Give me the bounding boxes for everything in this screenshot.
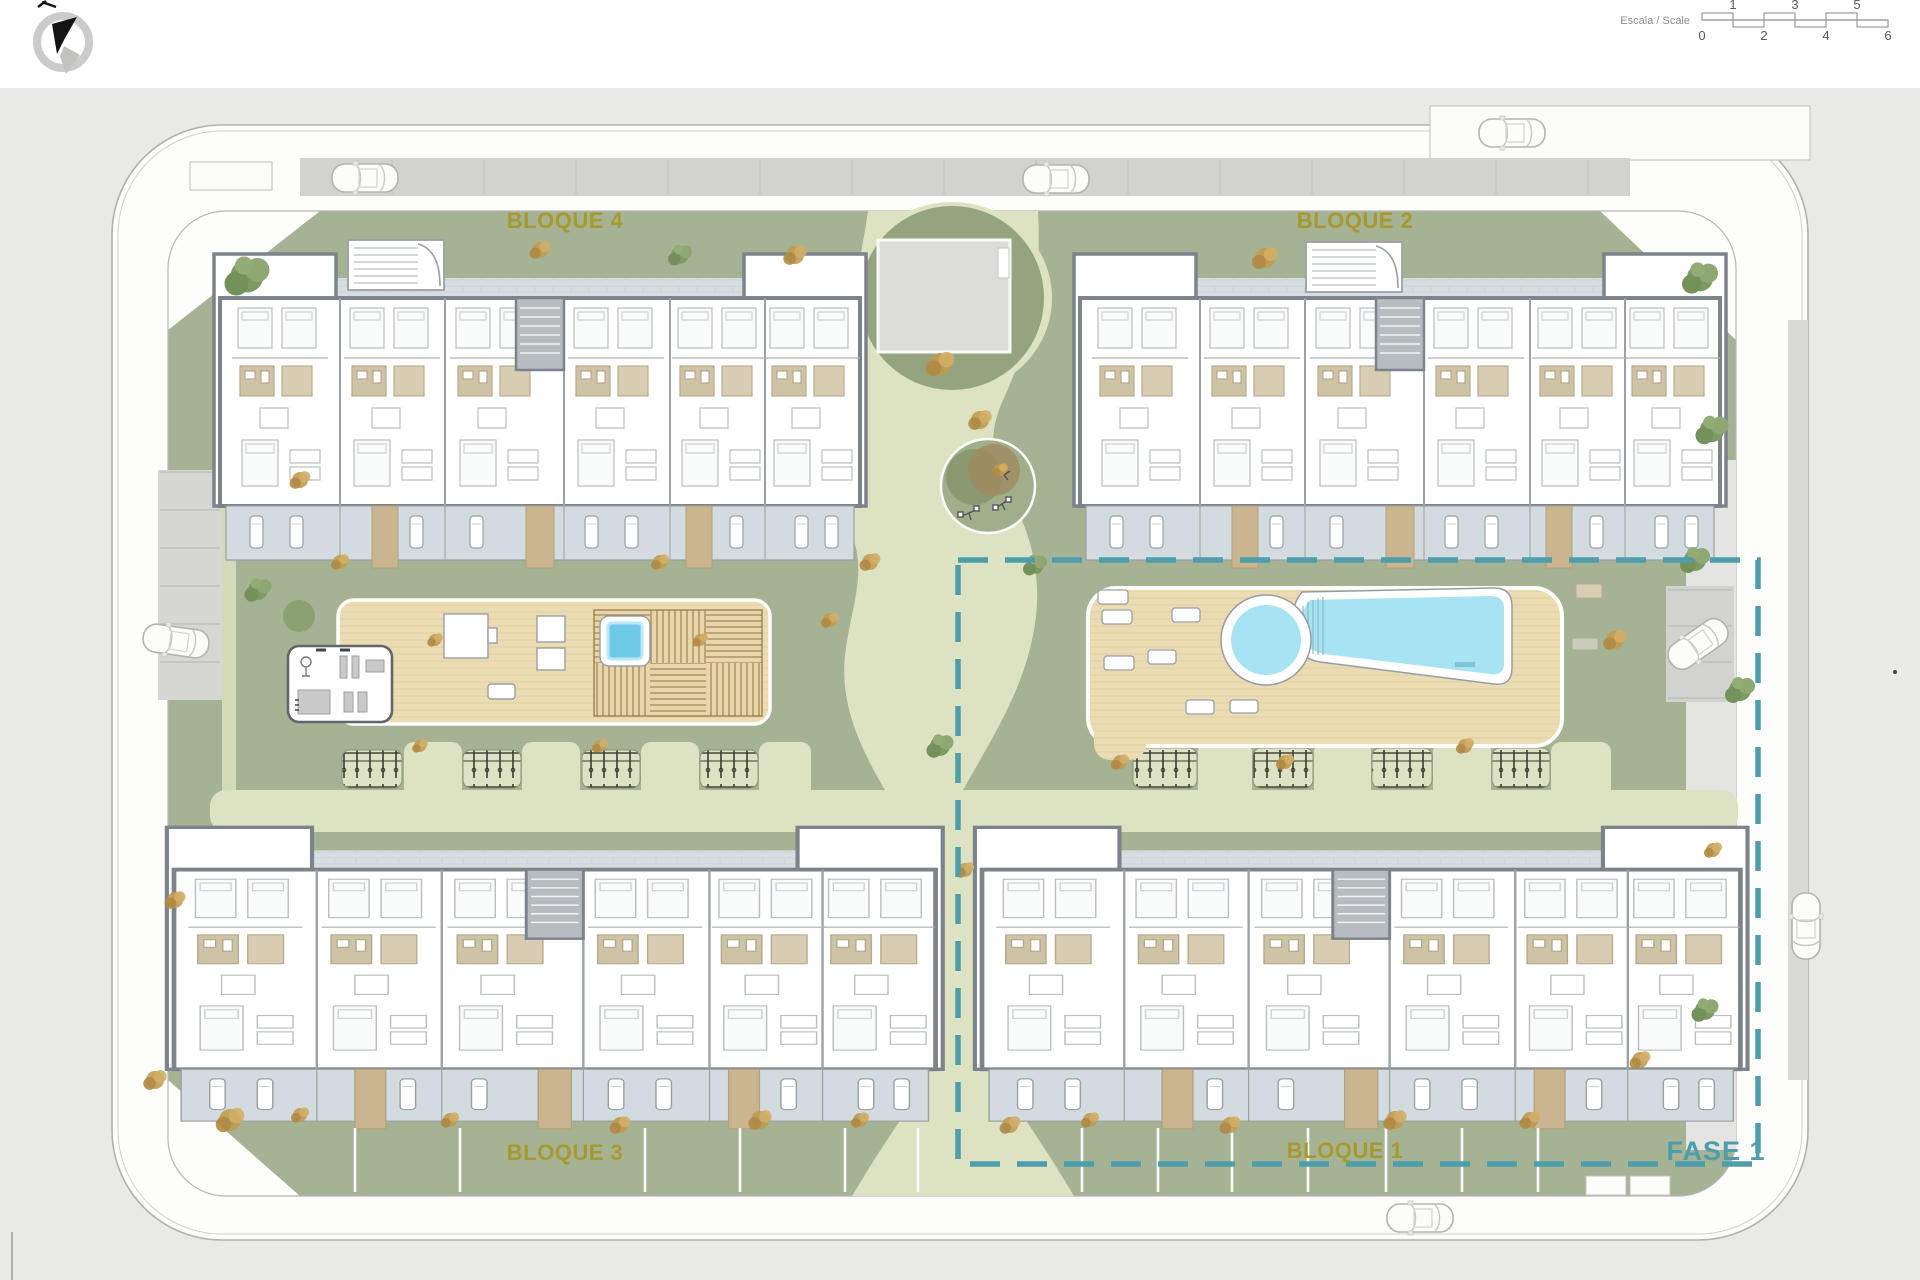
car-top-view	[1789, 893, 1823, 959]
label-bloque-4: BLOQUE 4	[507, 208, 624, 233]
car-top-view	[1023, 162, 1089, 196]
building-bloque-1	[975, 827, 1748, 1128]
spa-pool	[600, 616, 650, 666]
label-bloque-1: BLOQUE 1	[1287, 1138, 1403, 1163]
car-top-view	[1387, 1201, 1453, 1235]
playground-circle	[941, 439, 1035, 533]
building-bloque-3	[167, 827, 943, 1128]
label-fase-1: FASE 1	[1666, 1136, 1765, 1166]
scale-num-6: 6	[1884, 28, 1891, 43]
scale-num-1: 1	[1729, 0, 1736, 12]
scale-caption: Escala / Scale	[1620, 15, 1690, 27]
amenity-deck	[283, 600, 770, 724]
header-strip	[0, 0, 1920, 88]
label-bloque-3: BLOQUE 3	[507, 1140, 623, 1165]
building-bloque-2	[1074, 254, 1726, 568]
pool-deck	[1088, 584, 1602, 760]
site-plan-canvas: BLOQUE 4 BLOQUE 2 BLOQUE 3 BLOQUE 1 FASE…	[0, 0, 1920, 1280]
car-top-view	[332, 161, 398, 195]
scale-num-2: 2	[1760, 28, 1767, 43]
label-bloque-2: BLOQUE 2	[1297, 208, 1413, 233]
garage-ramp-bloque4	[348, 240, 444, 290]
building-bloque-4	[214, 254, 866, 568]
round-pool	[1221, 595, 1311, 685]
scale-num-4: 4	[1822, 28, 1829, 43]
master-plan-drawing: BLOQUE 4 BLOQUE 2 BLOQUE 3 BLOQUE 1 FASE…	[0, 0, 1920, 1280]
scale-num-0: 0	[1698, 28, 1705, 43]
scale-num-5: 5	[1853, 0, 1860, 12]
scale-num-3: 3	[1791, 0, 1798, 12]
car-top-view	[1479, 116, 1545, 150]
gym-building	[288, 646, 392, 722]
garage-ramp-bloque2	[1306, 242, 1402, 292]
